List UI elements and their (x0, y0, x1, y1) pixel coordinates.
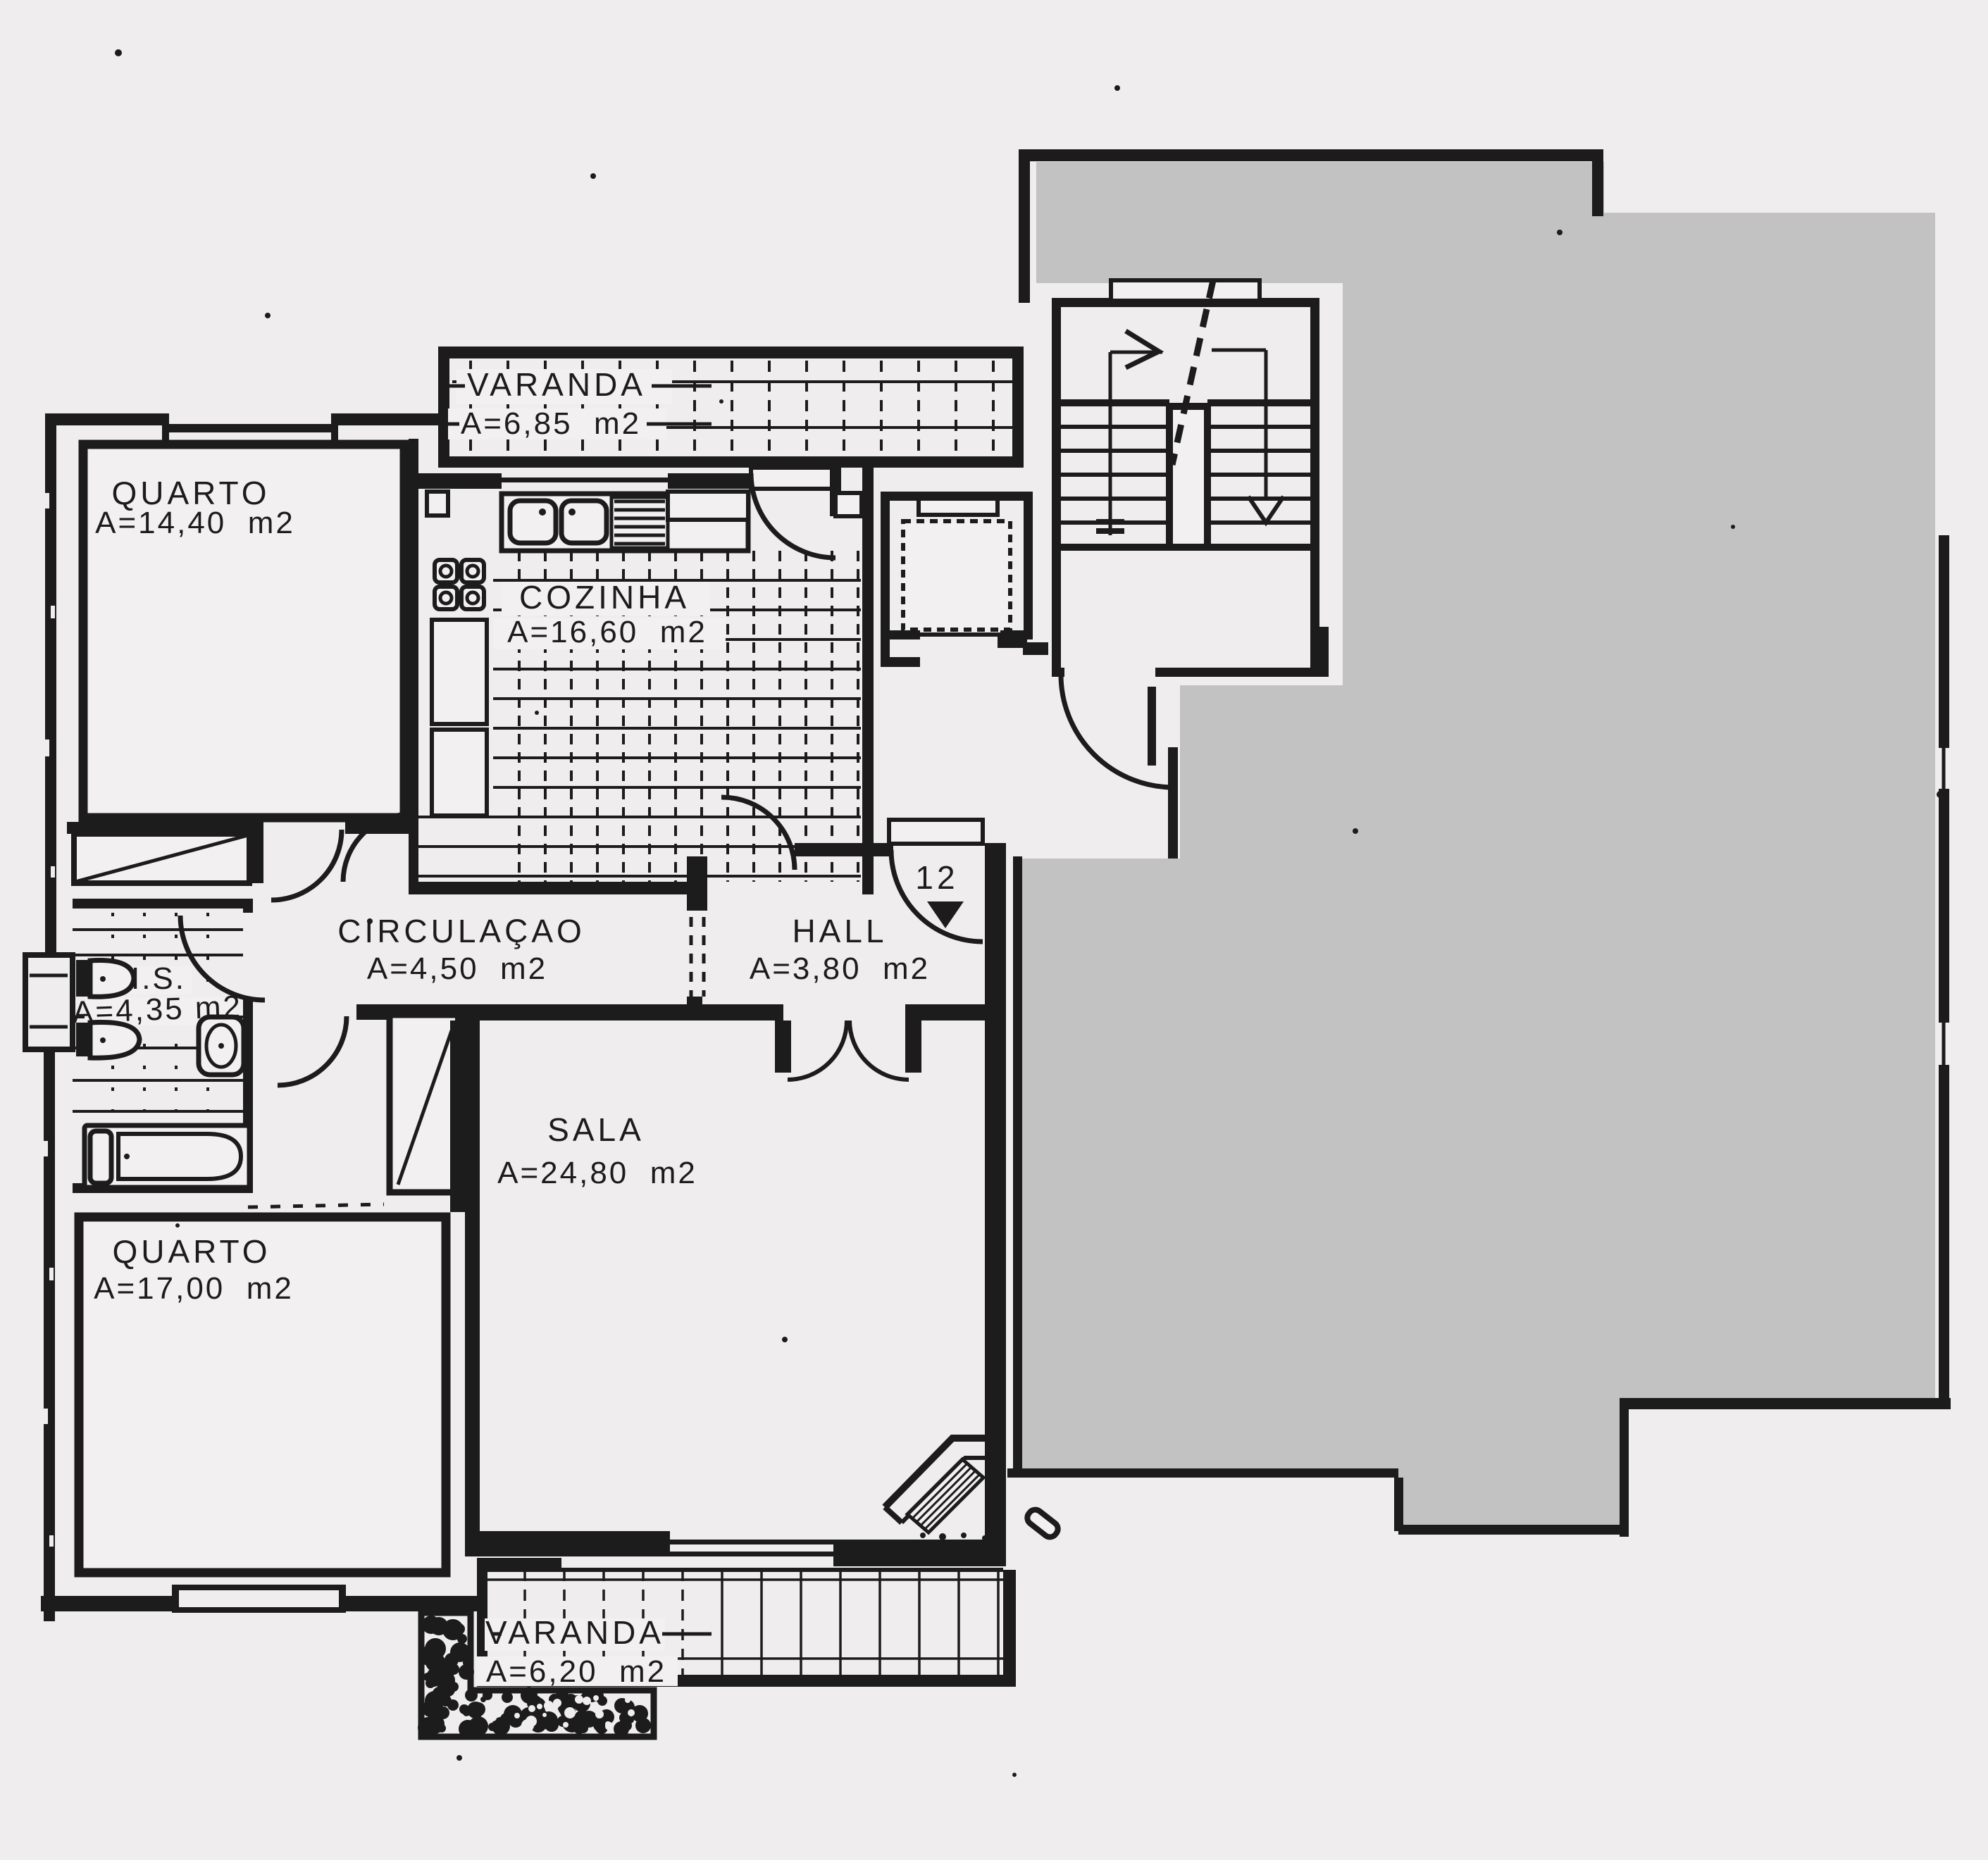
svg-text:A=6,85 m2: A=6,85 m2 (461, 406, 641, 441)
svg-text:A=14,40 m2: A=14,40 m2 (95, 506, 295, 540)
svg-text:A=4,50 m2: A=4,50 m2 (367, 951, 547, 986)
svg-text:A=6,20 m2: A=6,20 m2 (486, 1654, 666, 1689)
svg-text:A=16,60 m2: A=16,60 m2 (507, 615, 707, 649)
svg-text:A=3,80 m2: A=3,80 m2 (750, 951, 930, 986)
svg-text:CIRCULAÇAO: CIRCULAÇAO (337, 913, 585, 949)
svg-text:SALA: SALA (547, 1111, 645, 1148)
svg-text:I.S.: I.S. (131, 961, 186, 996)
svg-text:COZINHA: COZINHA (519, 579, 690, 616)
svg-text:VARANDA: VARANDA (467, 366, 646, 403)
svg-text:VARANDA: VARANDA (485, 1614, 664, 1651)
svg-text:QUARTO: QUARTO (112, 1233, 271, 1270)
svg-text:A=17,00 m2: A=17,00 m2 (94, 1271, 294, 1306)
svg-text:HALL: HALL (792, 913, 887, 949)
svg-text:12: 12 (915, 859, 958, 896)
svg-text:A=24,80 m2: A=24,80 m2 (497, 1156, 697, 1190)
